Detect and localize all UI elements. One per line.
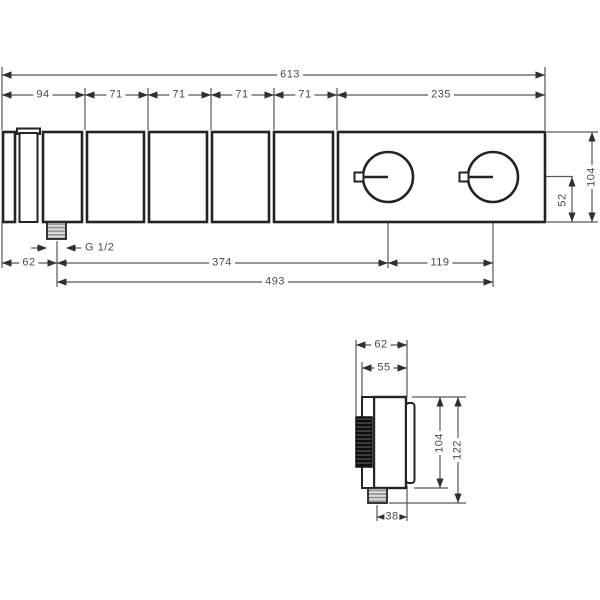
handle-2-index-tab <box>460 173 469 182</box>
dim-label-outlet-thread: G 1/2 <box>83 242 116 255</box>
dim-label-segment-3: 71 <box>169 89 188 102</box>
dim-label-overall-depth: 62 <box>371 339 390 352</box>
handle-1-index-tab <box>355 173 364 182</box>
side-wall-plate <box>406 403 415 483</box>
dim-label-escutcheon-depth: 55 <box>374 362 393 375</box>
end-cap <box>3 132 15 222</box>
dim-label-segment-2: 71 <box>106 89 125 102</box>
dim-label-segment-6: 235 <box>428 89 454 102</box>
dim-label-segment-4: 71 <box>232 89 251 102</box>
dim-label-segment-5: 71 <box>295 89 314 102</box>
dim-label-segment-1: 94 <box>33 89 52 102</box>
outlet-thread-side <box>368 488 387 503</box>
dim-label-side-body-height: 104 <box>434 431 447 455</box>
side-body <box>374 397 406 488</box>
dim-label-body-height: 104 <box>586 165 599 189</box>
dim-label-handle-center: 52 <box>557 191 570 208</box>
module-panel-2 <box>87 132 144 222</box>
spout-strip <box>20 133 38 222</box>
module-panel-4 <box>212 132 269 222</box>
module-panel-5 <box>274 132 333 222</box>
dim-label-outlet-offset: 62 <box>19 257 38 270</box>
front-view-body <box>3 129 545 223</box>
module-panel-1 <box>43 132 82 222</box>
dim-label-outlet-to-handle2: 493 <box>262 276 288 289</box>
module-panel-3 <box>149 132 207 222</box>
outlet-thread-front <box>47 222 66 239</box>
dim-label-outlet-to-handle1: 374 <box>209 257 235 270</box>
dim-label-handle-spacing: 119 <box>427 257 452 270</box>
side-handle <box>356 417 372 467</box>
dim-label-overall-width: 613 <box>277 69 303 82</box>
technical-drawing: 613 94 71 71 71 71 235 104 52 G 1/2 62 3… <box>0 0 600 600</box>
dim-label-overall-height: 122 <box>452 438 465 462</box>
dim-label-outlet-from-wall: 38 <box>384 511 399 524</box>
